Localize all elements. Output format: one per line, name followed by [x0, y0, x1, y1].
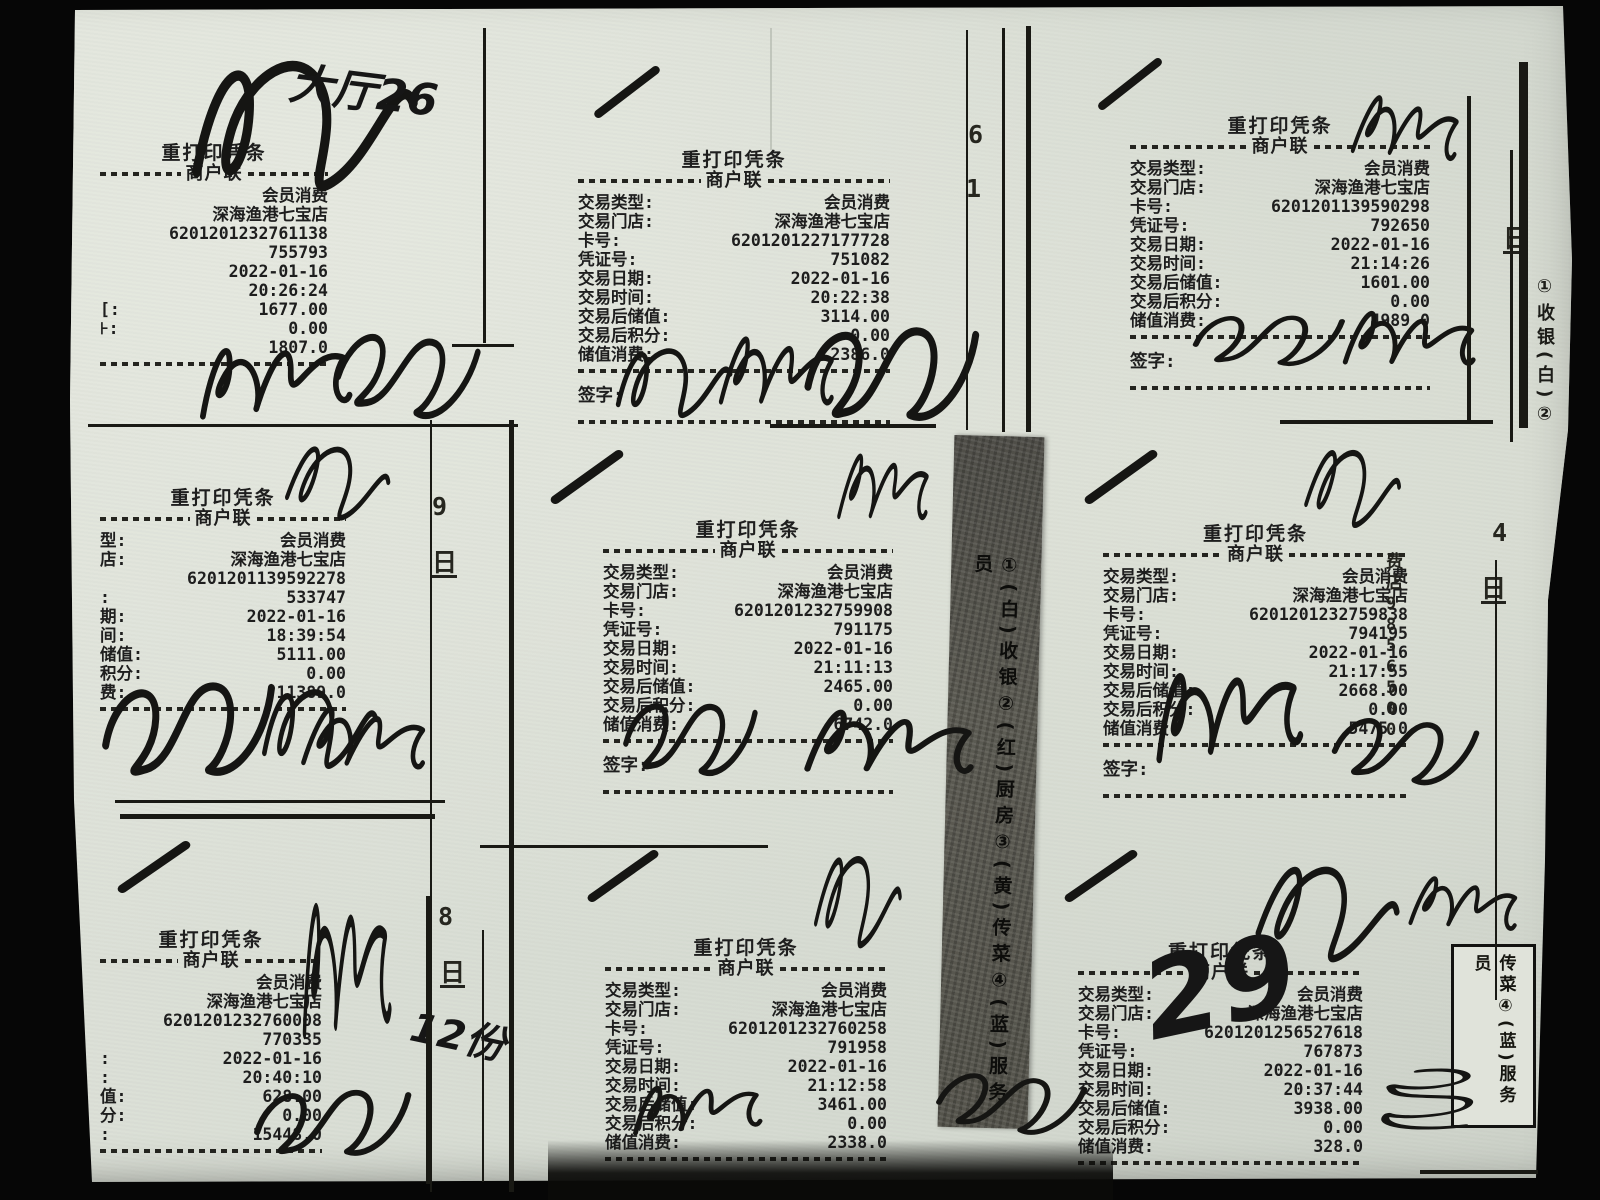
- field-value: 2386.0: [830, 345, 890, 364]
- receipt-row: 店:深海渔港七宝店: [100, 550, 346, 569]
- field-label: 交易类型:: [603, 563, 679, 582]
- field-label: 交易时间:: [578, 288, 654, 307]
- receipt-row: 交易门店:深海渔港七宝店: [603, 582, 893, 601]
- field-label: 积分:: [100, 664, 143, 683]
- field-label: 费:: [100, 683, 126, 702]
- field-label: 交易门店:: [603, 582, 679, 601]
- field-value: 6201201232759838: [1249, 605, 1408, 624]
- field-value: 2022-01-16: [247, 607, 346, 626]
- field-label: 储值:: [100, 645, 143, 664]
- receipt-row: 交易时间:20:22:38: [578, 288, 890, 307]
- receipt-top-right: 重打印凭条商户联交易类型:会员消费交易门店:深海渔港七宝店卡号:62012011…: [1130, 116, 1430, 390]
- receipt-row: 卡号:6201201232759838: [1103, 605, 1408, 624]
- field-label: 交易日期:: [1078, 1061, 1154, 1080]
- receipt-row: 6201201232760008: [100, 1011, 322, 1030]
- receipt-row: 770335: [100, 1030, 322, 1049]
- handwritten-note: 12份: [395, 995, 525, 1125]
- receipt-row: 分:0.00: [100, 1106, 322, 1125]
- field-label: 交易门店:: [1103, 586, 1179, 605]
- receipt-row: 交易时间:21:17:55: [1103, 662, 1408, 681]
- underlying-receipt-edge: [966, 30, 968, 430]
- underlying-receipt-edge: [480, 845, 768, 848]
- receipt-title: 重打印凭条: [605, 938, 887, 959]
- receipt-top-middle: 重打印凭条商户联交易类型:会员消费交易门店:深海渔港七宝店卡号:62012012…: [578, 150, 890, 424]
- underlying-receipt-edge: [1495, 560, 1497, 1000]
- receipt-row: 交易后积分:0.00: [1103, 700, 1408, 719]
- receipt-row: 交易日期:2022-01-16: [603, 639, 893, 658]
- receipt-row: 交易类型:会员消费: [1103, 567, 1408, 586]
- receipt-row: 交易类型:会员消费: [1130, 159, 1430, 178]
- sign-label: 签字:: [578, 382, 624, 407]
- copy-label: 商户联: [706, 171, 763, 191]
- field-label: :: [100, 588, 110, 607]
- edge-fragment-char: 费: [1386, 552, 1403, 573]
- receipt-title: 重打印凭条: [100, 930, 322, 951]
- field-label: 交易类型:: [578, 193, 654, 212]
- receipt-row: 交易门店:深海渔港七宝店: [1103, 586, 1408, 605]
- field-label: 交易时间:: [1103, 662, 1179, 681]
- edge-column-fragments: 费店9856500: [1386, 552, 1403, 741]
- receipt-row: 交易门店:深海渔港七宝店: [605, 1000, 887, 1019]
- copy-label-line: 商户联: [1103, 545, 1408, 565]
- receipt-row: 费:11389.0: [100, 683, 346, 702]
- receipt-top-left: 重打印凭条商户联会员消费深海渔港七宝店620120123276113875579…: [100, 143, 328, 366]
- receipt-row: 会员消费: [100, 973, 322, 992]
- field-label: :: [100, 1125, 110, 1144]
- receipt-row: 储值消费:328.0: [1078, 1137, 1363, 1156]
- field-value: 21:14:26: [1351, 254, 1430, 273]
- field-value: 751082: [830, 250, 890, 269]
- edge-fragment-char: 8: [1386, 615, 1403, 636]
- receipt-row: 期:2022-01-16: [100, 607, 346, 626]
- margin-digit: 1: [966, 176, 981, 201]
- receipt-row: 凭证号:792650: [1130, 216, 1430, 235]
- dashed-separator: [100, 707, 346, 711]
- copy-label: 商户联: [1252, 137, 1309, 157]
- field-value: 2022-01-16: [794, 639, 893, 658]
- field-value: 会员消费: [1364, 159, 1430, 178]
- field-value: 791175: [833, 620, 893, 639]
- field-value: 深海渔港七宝店: [778, 582, 894, 601]
- receipt-row: 交易后储值:2465.00: [603, 677, 893, 696]
- field-value: 11389.0: [276, 683, 346, 702]
- receipt-row: 凭证号:751082: [578, 250, 890, 269]
- field-value: 6742.0: [833, 715, 893, 734]
- field-value: 628.00: [262, 1087, 322, 1106]
- field-value: 深海渔港七宝店: [207, 992, 323, 1011]
- field-label: 交易后积分:: [578, 326, 670, 345]
- bottom-right-copy-text: 传菜④(蓝)服务员: [1469, 947, 1519, 1125]
- dashed-separator: [1130, 386, 1430, 390]
- field-label: 交易日期:: [1130, 235, 1206, 254]
- underlying-receipt-edge: [1002, 28, 1005, 432]
- dashed-separator: [100, 362, 328, 366]
- copy-label: 商户联: [718, 959, 775, 979]
- receipt-middle-right: 重打印凭条商户联交易类型:会员消费交易门店:深海渔港七宝店卡号:62012012…: [1103, 524, 1408, 798]
- field-value: 18:39:54: [267, 626, 346, 645]
- receipt-bottom-left: 重打印凭条商户联会员消费深海渔港七宝店620120123276000877033…: [100, 930, 322, 1153]
- field-value: 深海渔港七宝店: [775, 212, 891, 231]
- receipt-title: 重打印凭条: [578, 150, 890, 171]
- receipt-row: 交易类型:会员消费: [578, 193, 890, 212]
- field-value: 3938.00: [1293, 1099, 1363, 1118]
- field-label: 交易门店:: [1078, 1004, 1154, 1023]
- receipt-row: 凭证号:791175: [603, 620, 893, 639]
- field-label: 储值消费:: [1130, 311, 1206, 330]
- field-label: ⊦:: [100, 319, 119, 338]
- receipt-row: 交易类型:会员消费: [605, 981, 887, 1000]
- field-label: 交易后储值:: [603, 677, 695, 696]
- field-value: 会员消费: [280, 531, 346, 550]
- receipt-row: 交易时间:21:14:26: [1130, 254, 1430, 273]
- field-value: 2022-01-16: [788, 1057, 887, 1076]
- field-value: 0.00: [282, 1106, 322, 1125]
- field-label: 交易类型:: [1130, 159, 1206, 178]
- receipt-row: 交易门店:深海渔港七宝店: [578, 212, 890, 231]
- field-label: [:: [100, 300, 120, 319]
- field-value: 20:40:10: [243, 1068, 322, 1087]
- receipt-row: 交易后储值:3461.00: [605, 1095, 887, 1114]
- field-value: 0.00: [306, 664, 346, 683]
- field-label: 凭证号:: [603, 620, 662, 639]
- field-value: 深海渔港七宝店: [1315, 178, 1431, 197]
- receipt-title: 重打印凭条: [100, 488, 346, 509]
- receipt-row: :2022-01-16: [100, 1049, 322, 1068]
- copy-label-line: 商户联: [100, 951, 322, 971]
- sign-label: 签字:: [603, 752, 649, 777]
- field-label: 交易后储值:: [1078, 1099, 1170, 1118]
- field-value: 2465.00: [823, 677, 893, 696]
- receipt-row: 值:628.00: [100, 1087, 322, 1106]
- field-label: 交易日期:: [603, 639, 679, 658]
- receipt-row: [:1677.00: [100, 300, 328, 319]
- receipt-row: 交易后积分:0.00: [605, 1114, 887, 1133]
- field-label: 交易门店:: [578, 212, 654, 231]
- field-value: 20:22:38: [811, 288, 890, 307]
- field-label: 交易后积分:: [1130, 292, 1222, 311]
- receipt-row: 卡号:6201201232760258: [605, 1019, 887, 1038]
- receipt-row: 6201201139592278: [100, 569, 346, 588]
- receipt-row: 深海渔港七宝店: [100, 205, 328, 224]
- receipt-row: 交易后储值:2668.00: [1103, 681, 1408, 700]
- field-label: 型:: [100, 531, 126, 550]
- receipt-row: 交易日期:2022-01-16: [578, 269, 890, 288]
- receipt-title: 重打印凭条: [1130, 116, 1430, 137]
- field-value: 会员消费: [824, 193, 890, 212]
- field-value: 0.00: [853, 696, 893, 715]
- field-value: 深海渔港七宝店: [772, 1000, 888, 1019]
- receipt-title: 重打印凭条: [100, 143, 328, 164]
- field-value: 6201201232760258: [728, 1019, 887, 1038]
- margin-digit: 8: [438, 904, 453, 929]
- receipt-row: 储值消费:2386.0: [578, 345, 890, 364]
- receipt-row: 交易日期:2022-01-16: [605, 1057, 887, 1076]
- field-label: 交易后储值:: [1130, 273, 1222, 292]
- handwritten-note: 29: [1131, 904, 1340, 1116]
- receipt-row: 凭证号:794195: [1103, 624, 1408, 643]
- field-label: 交易后储值:: [578, 307, 670, 326]
- receipt-row: 交易后积分:0.00: [603, 696, 893, 715]
- margin-digit: 日: [440, 960, 465, 988]
- field-value: 会员消费: [827, 563, 893, 582]
- receipt-row: 深海渔港七宝店: [100, 992, 322, 1011]
- underlying-receipt-edge: [1510, 150, 1513, 442]
- field-label: 卡号:: [1103, 605, 1146, 624]
- underlying-receipt-edge: [483, 28, 486, 343]
- underlying-receipt-edge: [1420, 1170, 1538, 1174]
- field-label: 卡号:: [1078, 1023, 1121, 1042]
- receipt-row: 交易类型:会员消费: [603, 563, 893, 582]
- field-label: 交易时间:: [603, 658, 679, 677]
- margin-digit: 6: [968, 122, 983, 147]
- receipt-row: 间:18:39:54: [100, 626, 346, 645]
- receipt-row: 2022-01-16: [100, 262, 328, 281]
- sign-row: 签字:: [603, 743, 893, 785]
- receipt-row: 凭证号:791958: [605, 1038, 887, 1057]
- sign-label: 签字:: [1103, 756, 1149, 781]
- field-label: 卡号:: [603, 601, 646, 620]
- receipt-row: :20:40:10: [100, 1068, 322, 1087]
- field-label: 分:: [100, 1106, 126, 1125]
- receipt-row: 交易后积分:0.00: [578, 326, 890, 345]
- field-value: 5111.00: [276, 645, 346, 664]
- field-label: 交易时间:: [1130, 254, 1206, 273]
- receipt-row: 会员消费: [100, 186, 328, 205]
- field-label: 交易时间:: [605, 1076, 681, 1095]
- receipt-row: 交易后储值:3114.00: [578, 307, 890, 326]
- receipt-row: ⊦:0.00: [100, 319, 328, 338]
- margin-digit: 4: [1492, 520, 1507, 545]
- field-value: 15448.0: [252, 1125, 322, 1144]
- receipt-row: :533747: [100, 588, 346, 607]
- right-edge-copy-text: ①收银(白)②: [1531, 276, 1557, 430]
- field-value: 3461.00: [817, 1095, 887, 1114]
- field-value: 791958: [827, 1038, 887, 1057]
- field-value: 会员消费: [262, 186, 328, 205]
- edge-fragment-char: 5: [1386, 636, 1403, 657]
- field-label: 凭证号:: [605, 1038, 664, 1057]
- receipt-row: 卡号:6201201139590298: [1130, 197, 1430, 216]
- edge-fragment-char: 0: [1386, 720, 1403, 741]
- receipt-row: 卡号:6201201232759908: [603, 601, 893, 620]
- field-value: 3114.00: [820, 307, 890, 326]
- field-label: 卡号:: [605, 1019, 648, 1038]
- field-label: 交易后储值:: [605, 1095, 697, 1114]
- field-value: 755793: [268, 243, 328, 262]
- field-value: 6201201232761138: [169, 224, 328, 243]
- field-value: 6201201139592278: [187, 569, 346, 588]
- field-value: 4989.0: [1370, 311, 1430, 330]
- copy-label-line: 商户联: [605, 959, 887, 979]
- carbon-strip: ①(白)收银②(红)厨房③(黄)传菜④(蓝)服务员: [938, 435, 1045, 1129]
- receipt-row: 交易门店:深海渔港七宝店: [1130, 178, 1430, 197]
- field-value: 6201201139590298: [1271, 197, 1430, 216]
- copy-label: 商户联: [195, 509, 252, 529]
- sign-row: 签字:: [578, 373, 890, 415]
- underlying-receipt-edge: [120, 814, 435, 819]
- receipt-row: 交易日期:2022-01-16: [1130, 235, 1430, 254]
- field-label: 凭证号:: [1130, 216, 1189, 235]
- receipt-row: 储值消费:5475.0: [1103, 719, 1408, 738]
- underlying-receipt-edge: [88, 424, 518, 427]
- receipt-row: 积分:0.00: [100, 664, 346, 683]
- receipt-row: :15448.0: [100, 1125, 322, 1144]
- field-value: 0.00: [847, 1114, 887, 1133]
- receipt-row: 交易后积分:0.00: [1078, 1118, 1363, 1137]
- receipt-row: 6201201232761138: [100, 224, 328, 243]
- copy-label-line: 商户联: [100, 509, 346, 529]
- copy-label-line: 商户联: [603, 541, 893, 561]
- edge-fragment-char: 9: [1386, 594, 1403, 615]
- field-value: 770335: [262, 1030, 322, 1049]
- field-label: 交易时间:: [1078, 1080, 1154, 1099]
- field-label: 卡号:: [578, 231, 621, 250]
- field-label: 交易后积分:: [1103, 700, 1195, 719]
- field-label: 值:: [100, 1087, 126, 1106]
- receipt-row: 1807.0: [100, 338, 328, 357]
- underlying-receipt-edge: [1519, 62, 1528, 428]
- dashed-separator: [1078, 1161, 1363, 1165]
- edge-fragment-char: 6: [1386, 657, 1403, 678]
- copy-distribution-text: ①(白)收银②(红)厨房③(黄)传菜④(蓝)服务员: [956, 553, 1024, 1128]
- field-value: 20:26:24: [249, 281, 328, 300]
- receipt-middle-center: 重打印凭条商户联交易类型:会员消费交易门店:深海渔港七宝店卡号:62012012…: [603, 520, 893, 794]
- dashed-separator: [603, 790, 893, 794]
- field-label: 储值消费:: [603, 715, 679, 734]
- field-value: 2022-01-16: [791, 269, 890, 288]
- receipt-row: 储值消费:4989.0: [1130, 311, 1430, 330]
- scanned-sheet: 重打印凭条商户联会员消费深海渔港七宝店620120123276113875579…: [0, 0, 1600, 1200]
- field-label: :: [100, 1049, 110, 1068]
- underlying-receipt-edge: [452, 344, 514, 347]
- field-value: 0.00: [850, 326, 890, 345]
- field-value: 533747: [286, 588, 346, 607]
- receipt-row: 交易后储值:1601.00: [1130, 273, 1430, 292]
- copy-label: 商户联: [1227, 545, 1284, 565]
- receipt-middle-left: 重打印凭条商户联型:会员消费店:深海渔港七宝店6201201139592278:…: [100, 488, 346, 711]
- field-value: 2022-01-16: [229, 262, 328, 281]
- field-label: 交易日期:: [1103, 643, 1179, 662]
- field-value: 21:11:13: [814, 658, 893, 677]
- field-value: 6201201232760008: [163, 1011, 322, 1030]
- field-label: :: [100, 1068, 110, 1087]
- dashed-separator: [1103, 794, 1408, 798]
- underlying-receipt-edge: [1280, 420, 1493, 424]
- copy-label: 商户联: [186, 164, 243, 184]
- field-label: 储值消费:: [1103, 719, 1179, 738]
- field-label: 卡号:: [1130, 197, 1173, 216]
- field-label: 店:: [100, 550, 126, 569]
- field-label: 交易后储值:: [1103, 681, 1195, 700]
- field-value: 0.00: [1323, 1118, 1363, 1137]
- field-label: 交易日期:: [578, 269, 654, 288]
- paper-crease: [770, 28, 772, 150]
- underlying-receipt-edge: [1026, 26, 1031, 432]
- field-label: 交易类型:: [605, 981, 681, 1000]
- receipt-title: 重打印凭条: [1103, 524, 1408, 545]
- field-label: 凭证号:: [1103, 624, 1162, 643]
- edge-fragment-char: 0: [1386, 699, 1403, 720]
- receipt-row: 储值:5111.00: [100, 645, 346, 664]
- field-value: 会员消费: [821, 981, 887, 1000]
- field-value: 1601.00: [1360, 273, 1430, 292]
- field-value: 6201201227177728: [731, 231, 890, 250]
- edge-fragment-char: 5: [1386, 678, 1403, 699]
- receipt-row: 20:26:24: [100, 281, 328, 300]
- receipt-row: 交易日期:2022-01-16: [1103, 643, 1408, 662]
- copy-label-line: 商户联: [1130, 137, 1430, 157]
- field-value: 6201201232759908: [734, 601, 893, 620]
- receipt-row: 型:会员消费: [100, 531, 346, 550]
- sign-row: 签字:: [1130, 339, 1430, 381]
- underlying-receipt-edge: [426, 896, 432, 1184]
- field-value: 深海渔港七宝店: [231, 550, 347, 569]
- field-label: 凭证号:: [578, 250, 637, 269]
- receipt-title: 重打印凭条: [603, 520, 893, 541]
- field-label: 期:: [100, 607, 126, 626]
- field-value: 1677.00: [258, 300, 328, 319]
- sign-row: 签字:: [1103, 747, 1408, 789]
- copy-label: 商户联: [720, 541, 777, 561]
- margin-digit: 日: [1481, 576, 1506, 604]
- dashed-separator: [100, 1149, 322, 1153]
- field-label: 交易日期:: [605, 1057, 681, 1076]
- bottom-right-copy-box: 传菜④(蓝)服务员: [1451, 944, 1536, 1128]
- field-value: 深海渔港七宝店: [213, 205, 329, 224]
- field-value: 0.00: [1390, 292, 1430, 311]
- field-label: 凭证号:: [1078, 1042, 1137, 1061]
- receipt-row: 交易时间:21:11:13: [603, 658, 893, 677]
- underlying-receipt-edge: [482, 930, 484, 1182]
- field-value: 1807.0: [268, 338, 328, 357]
- field-value: 0.00: [288, 319, 328, 338]
- field-value: 792650: [1370, 216, 1430, 235]
- field-label: 交易后积分:: [1078, 1118, 1170, 1137]
- field-label: 交易类型:: [1103, 567, 1179, 586]
- underlying-receipt-edge: [1467, 96, 1471, 424]
- copy-label-line: 商户联: [578, 171, 890, 191]
- field-label: 间:: [100, 626, 126, 645]
- receipt-row: 卡号:6201201227177728: [578, 231, 890, 250]
- field-label: 交易门店:: [605, 1000, 681, 1019]
- field-value: 328.0: [1313, 1137, 1363, 1156]
- field-value: 21:12:58: [808, 1076, 887, 1095]
- margin-digit: 日: [432, 550, 457, 578]
- underlying-receipt-edge: [115, 800, 445, 803]
- field-label: 交易后积分:: [603, 696, 695, 715]
- sign-label: 签字:: [1130, 348, 1176, 373]
- receipt-row: 储值消费:6742.0: [603, 715, 893, 734]
- margin-digit: 9: [432, 494, 447, 519]
- field-value: 2022-01-16: [1331, 235, 1430, 254]
- edge-fragment-char: 店: [1386, 573, 1403, 594]
- underlying-receipt-edge: [770, 424, 936, 428]
- field-label: 交易门店:: [1130, 178, 1206, 197]
- field-value: 2022-01-16: [223, 1049, 322, 1068]
- field-label: 交易后积分:: [605, 1114, 697, 1133]
- copy-label-line: 商户联: [100, 164, 328, 184]
- underlying-receipt-edge: [509, 420, 514, 1192]
- receipt-bottom-middle: 重打印凭条商户联交易类型:会员消费交易门店:深海渔港七宝店卡号:62012012…: [605, 938, 887, 1161]
- paper-edge-shadow: [548, 1140, 1113, 1200]
- field-label: 储值消费:: [578, 345, 654, 364]
- field-value: 会员消费: [256, 973, 322, 992]
- copy-label: 商户联: [183, 951, 240, 971]
- receipt-row: 交易时间:21:12:58: [605, 1076, 887, 1095]
- receipt-row: 交易后积分:0.00: [1130, 292, 1430, 311]
- receipt-row: 755793: [100, 243, 328, 262]
